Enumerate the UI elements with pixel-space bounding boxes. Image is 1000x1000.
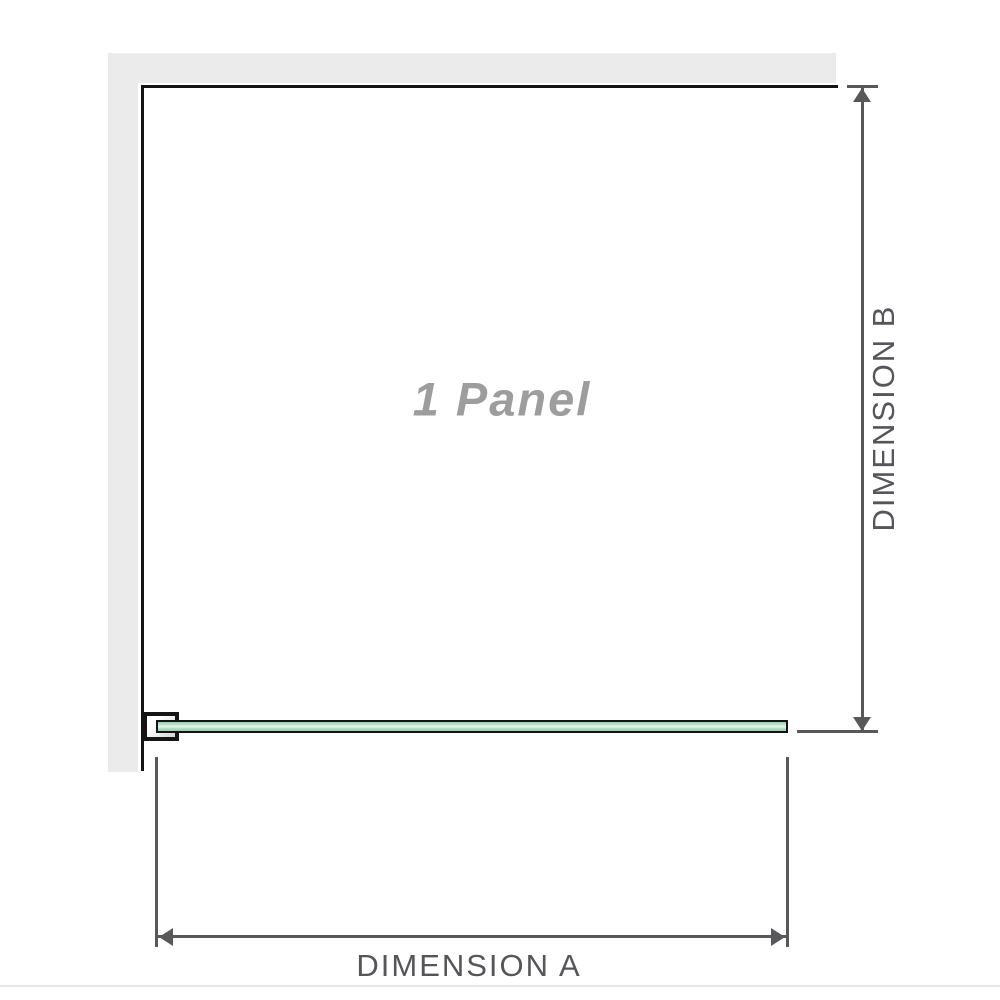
enclosure-edge-top: [142, 85, 838, 88]
glass-panel: [156, 720, 788, 733]
bottom-divider: [0, 985, 1000, 987]
dim-b-label: DIMENSION B: [866, 305, 902, 532]
arrow-right-icon: [771, 928, 785, 946]
wall-left: [108, 53, 138, 772]
panel-count-label: 1 Panel: [413, 372, 592, 427]
diagram-canvas: 1 Panel DIMENSION B DIMENSION A: [0, 0, 1000, 1000]
wall-top: [108, 53, 836, 83]
arrow-left-icon: [159, 928, 173, 946]
enclosure-edge-left: [141, 85, 144, 771]
dim-a-extension-left: [155, 757, 158, 947]
dim-a-extension-right: [786, 757, 789, 947]
arrow-up-icon: [853, 88, 871, 102]
dim-a-line: [158, 935, 786, 938]
arrow-down-icon: [853, 717, 871, 731]
dim-b-line: [861, 87, 864, 732]
dim-a-label: DIMENSION A: [356, 948, 581, 984]
